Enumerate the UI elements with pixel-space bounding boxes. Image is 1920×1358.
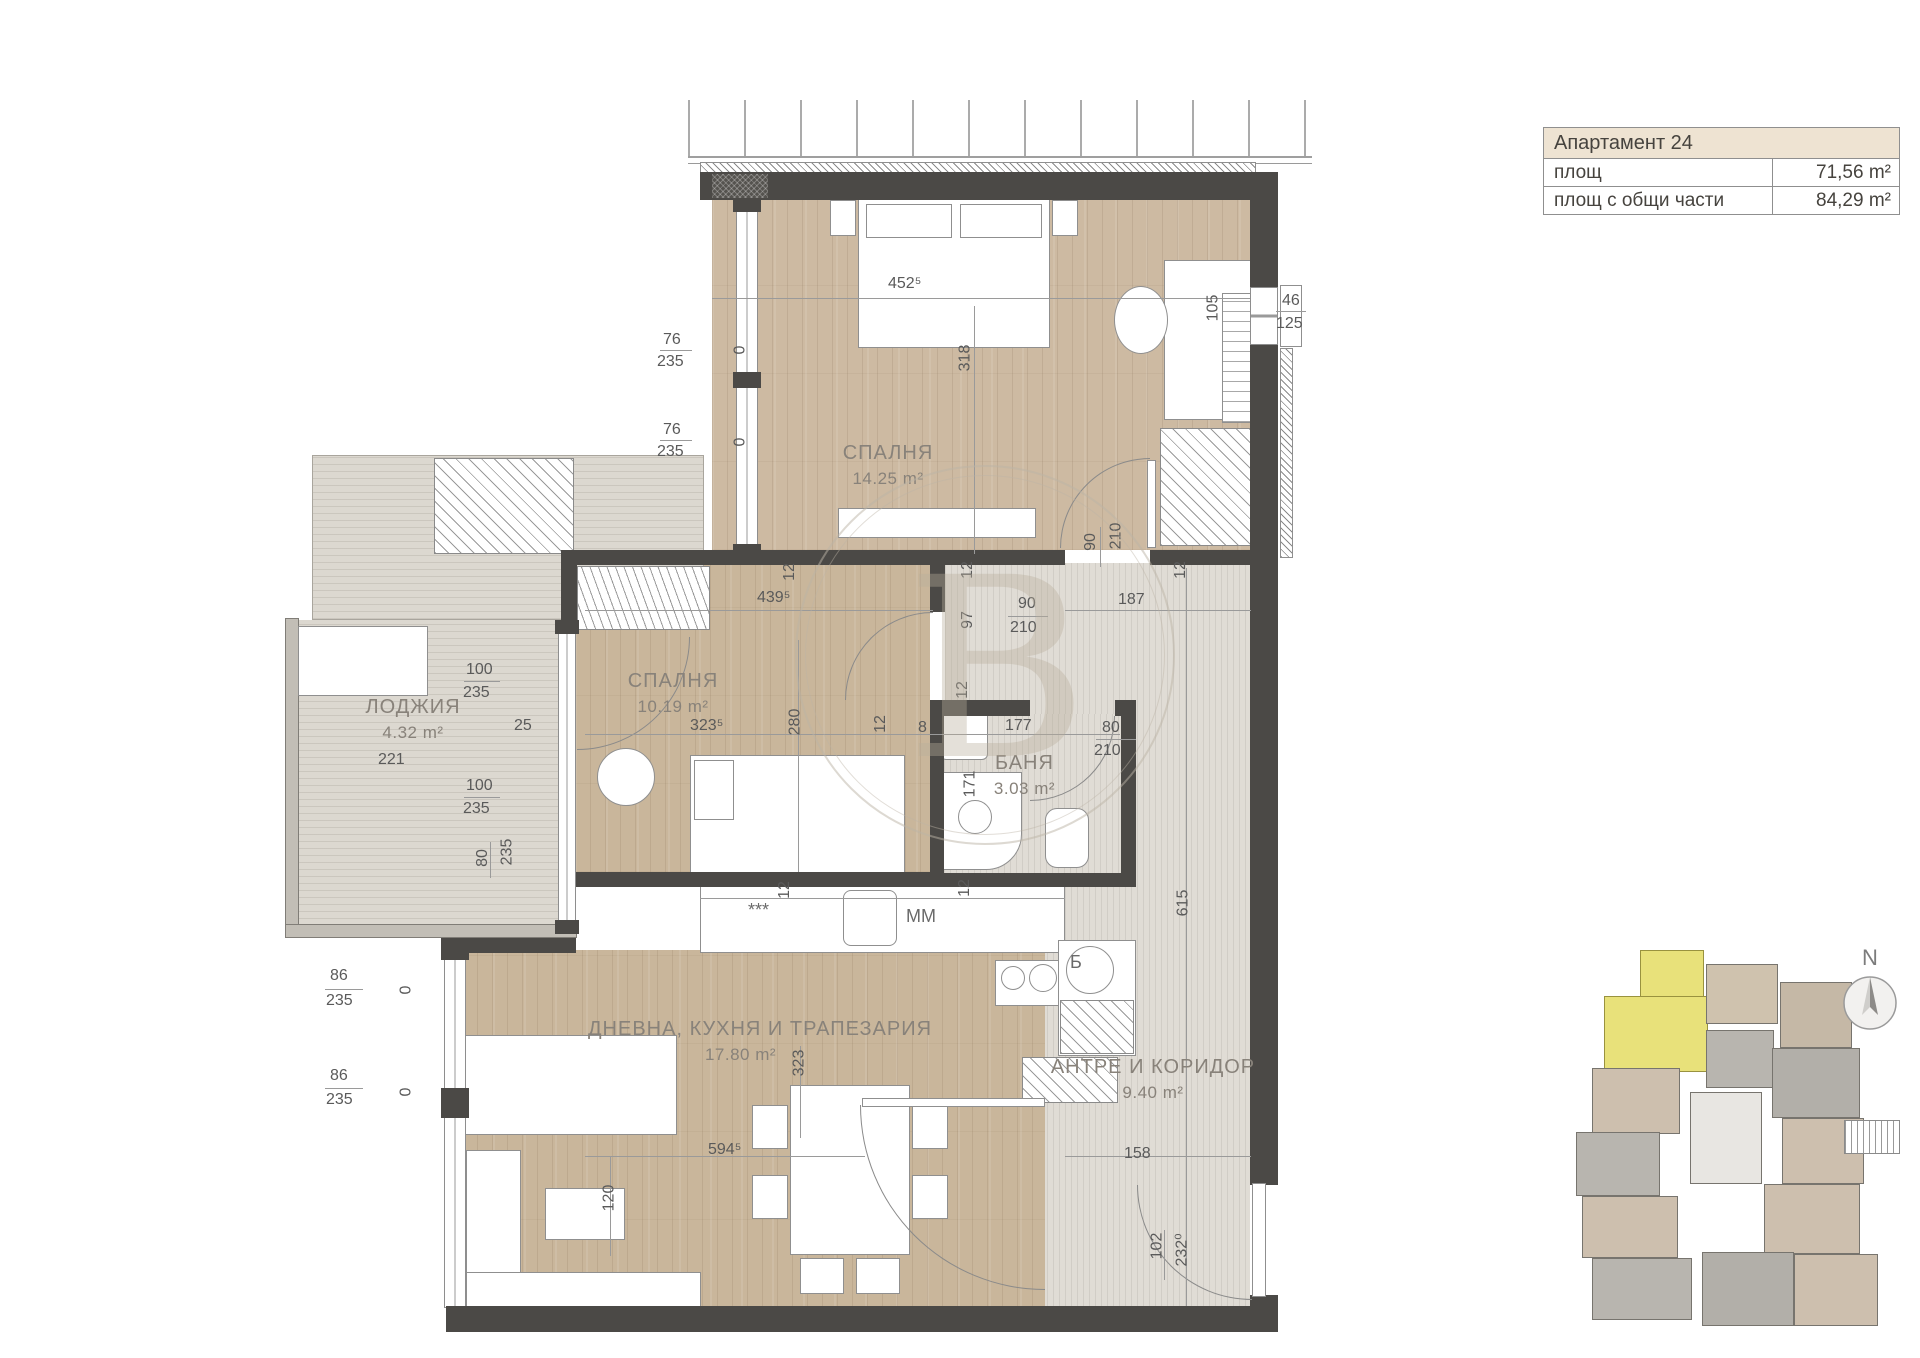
planter <box>298 626 428 696</box>
pillow <box>866 204 952 238</box>
window-living-left <box>444 958 466 1308</box>
insulation-right <box>1280 348 1293 558</box>
room-name: ДНЕВНА, КУХНЯ И ТРАПЕЗАРИЯ <box>588 1018 893 1041</box>
room-label-hall: АНТРЕ И КОРИДОР 9.40 m² <box>1048 1056 1258 1103</box>
fraction-bar <box>325 1088 363 1089</box>
compass-rose-icon <box>1838 971 1902 1035</box>
dim-bath-210: 210 <box>1094 743 1121 759</box>
cabinet <box>1060 1000 1134 1054</box>
fraction-bar <box>464 681 500 682</box>
dim-615: 615 <box>1175 890 1191 917</box>
wall-block <box>733 372 761 388</box>
minimap-unit <box>1706 964 1778 1024</box>
minimap-unit <box>1706 1030 1774 1088</box>
room-area: 10.19 m² <box>588 697 758 717</box>
wall-bath-left <box>930 700 944 887</box>
minimap-unit-highlight <box>1604 996 1708 1072</box>
dim-97: 97 <box>960 611 976 629</box>
dim-window76: 76 <box>663 422 681 438</box>
info-value: 84,29 m² <box>1773 187 1899 214</box>
dim-window-open: 0 <box>398 986 414 995</box>
toilet <box>1045 808 1089 868</box>
room-label-living: ДНЕВНА, КУХНЯ И ТРАПЕЗАРИЯ 17.80 m² <box>588 1018 893 1065</box>
wall-right <box>1250 172 1278 287</box>
info-label: площ <box>1544 159 1773 186</box>
dim-window86: 86 <box>330 1068 348 1084</box>
dishwasher-mark: *** <box>748 900 769 921</box>
room-area: 9.40 m² <box>1048 1083 1258 1103</box>
room-area: 17.80 m² <box>588 1045 893 1065</box>
dim-loggia-235: 235 <box>499 839 515 866</box>
chair <box>752 1175 788 1219</box>
dim-bath-80: 80 <box>1102 720 1120 736</box>
loggia-parapet-bottom <box>285 924 577 938</box>
dim-bedroom1-width: 452⁵ <box>888 276 921 292</box>
minimap-unit <box>1576 1132 1660 1196</box>
dim-line <box>1065 1156 1251 1157</box>
fraction-bar <box>1100 527 1101 567</box>
wardrobe-bedroom1 <box>1160 428 1252 546</box>
minimap-unit <box>1702 1252 1794 1326</box>
wall-bedroom2-right <box>930 565 945 612</box>
room-label-bedroom2: СПАЛНЯ 10.19 m² <box>588 670 758 717</box>
fraction-bar <box>1096 739 1136 740</box>
shower-drain <box>958 800 992 834</box>
dim-line <box>974 306 975 554</box>
dim-bedroom2-323: 323⁵ <box>690 718 723 734</box>
room-area: 3.03 m² <box>952 779 1097 799</box>
door-leaf-bedroom1 <box>1147 460 1156 548</box>
pillow <box>694 760 734 820</box>
dim-line <box>1186 568 1187 1306</box>
wall-bedroom1-bottom <box>1150 550 1252 565</box>
dim-window235: 235 <box>657 444 684 460</box>
dim-loggia-80: 80 <box>475 849 491 867</box>
minimap-unit <box>1764 1184 1860 1254</box>
desk-chair <box>1114 286 1168 354</box>
wall-corner-block <box>712 174 768 198</box>
window-right <box>1250 287 1278 345</box>
dim-loggia-100: 100 <box>466 778 493 794</box>
dim-window235: 235 <box>657 354 684 370</box>
dim-hall-158: 158 <box>1124 1146 1151 1162</box>
room-area: 4.32 m² <box>338 723 488 743</box>
dim-window-open: 0 <box>398 1088 414 1097</box>
dim-12: 12 <box>960 561 976 579</box>
loggia-parapet-left <box>285 618 299 938</box>
fraction-bar <box>1276 311 1306 312</box>
room-name: СПАЛНЯ <box>808 442 968 465</box>
wall-top <box>700 172 1252 200</box>
wall-block <box>441 1088 469 1118</box>
dim-12: 12 <box>1173 561 1189 579</box>
door-leaf-entrance <box>1252 1183 1266 1297</box>
washing-machine-mark: MM <box>906 906 936 927</box>
dim-line <box>1065 610 1251 611</box>
dim-bath-177: 177 <box>1005 718 1032 734</box>
dim-window-right-w: 46 <box>1282 293 1300 309</box>
dim-door-210: 210 <box>1108 523 1124 550</box>
nightstand <box>1052 200 1078 236</box>
room-area: 14.25 m² <box>808 469 968 489</box>
dim-bedroom2-width: 439⁵ <box>757 590 790 606</box>
fraction-bar <box>325 989 363 990</box>
info-row-area: площ 71,56 m² <box>1544 159 1899 187</box>
wall-block <box>733 198 761 212</box>
shelf-unit <box>1222 293 1252 423</box>
minimap-unit <box>1794 1254 1878 1326</box>
dim-desk: 105 <box>1205 295 1221 322</box>
dim-window86: 86 <box>330 968 348 984</box>
dim-12: 12 <box>955 681 971 699</box>
info-label: площ с общи части <box>1544 187 1773 214</box>
wall-block <box>555 920 579 934</box>
wall-bedroom2-bottom <box>575 872 935 887</box>
wall-bottom <box>446 1306 1278 1332</box>
burner <box>1029 964 1057 992</box>
dim-line <box>798 640 799 872</box>
wall-block <box>555 620 579 634</box>
room-name: ЛОДЖИЯ <box>338 696 488 719</box>
apartment-info-table: Апартамент 24 площ 71,56 m² площ с общи … <box>1543 127 1900 215</box>
dim-hall-102: 102 <box>1149 1233 1165 1260</box>
window-loggia <box>558 632 576 928</box>
terrace-storage <box>434 458 574 554</box>
dim-window235: 235 <box>326 1092 353 1108</box>
dim-line <box>585 610 933 611</box>
terrace-railing <box>688 100 1312 158</box>
room-label-loggia: ЛОДЖИЯ 4.32 m² <box>338 696 488 743</box>
dim-hall-232: 232⁰ <box>1175 1233 1191 1266</box>
wall-bedroom1-bottom <box>561 550 1065 565</box>
dim-living-594: 594⁵ <box>708 1142 741 1158</box>
dim-bedroom2-280: 280 <box>787 709 803 736</box>
dim-12: 12 <box>777 881 793 899</box>
dim-bedroom1-depth: 318 <box>957 345 973 372</box>
chair <box>800 1258 844 1294</box>
chair <box>752 1105 788 1149</box>
pillow <box>960 204 1042 238</box>
wardrobe-bedroom2 <box>577 566 710 630</box>
minimap-unit <box>1592 1068 1680 1134</box>
dim-door-90: 90 <box>1083 533 1099 551</box>
dim-loggia-221: 221 <box>378 752 405 768</box>
dim-line <box>700 898 1065 899</box>
armchair <box>597 748 655 806</box>
dim-187: 187 <box>1118 592 1145 608</box>
minimap-stairs <box>1844 1120 1900 1154</box>
floor-plan-canvas: B Апартамент 24 площ 71,56 m² площ с общ… <box>0 0 1920 1358</box>
wall-living-loggia <box>446 938 576 953</box>
info-row-common-area: площ с общи части 84,29 m² <box>1544 187 1899 214</box>
nightstand <box>830 200 856 236</box>
minimap-unit <box>1772 1048 1860 1118</box>
dim-door-90: 90 <box>1018 596 1036 612</box>
dim-12: 12 <box>873 715 889 733</box>
dim-window76: 76 <box>663 332 681 348</box>
room-name: БАНЯ <box>952 752 1097 775</box>
dim-12: 12 <box>957 879 973 897</box>
minimap-unit <box>1592 1258 1692 1320</box>
dim-bath-8: 8 <box>918 720 927 736</box>
apartment-title: Апартамент 24 <box>1544 128 1899 159</box>
fraction-bar <box>464 797 500 798</box>
boiler-mark: Б <box>1070 952 1082 973</box>
wall-bath-top <box>930 700 1030 716</box>
dresser <box>838 508 1036 538</box>
chair <box>856 1258 900 1294</box>
room-name: СПАЛНЯ <box>588 670 758 693</box>
fraction-bar <box>660 350 692 351</box>
dim-window-open: 0 <box>732 438 748 447</box>
info-value: 71,56 m² <box>1773 159 1899 186</box>
minimap-unit-highlight <box>1640 950 1704 1000</box>
compass-north-label: N <box>1838 945 1902 971</box>
door-leaf-living <box>862 1098 1045 1107</box>
dim-door-210: 210 <box>1010 620 1037 636</box>
dim-window235: 235 <box>326 993 353 1009</box>
dim-loggia-25: 25 <box>514 718 532 734</box>
dim-window-open: 0 <box>732 346 748 355</box>
compass: N <box>1838 945 1902 1035</box>
burner <box>1001 966 1025 990</box>
fraction-bar <box>660 440 692 441</box>
wall-bath-right <box>1121 700 1136 887</box>
dim-loggia-235: 235 <box>463 801 490 817</box>
minimap-core <box>1690 1092 1762 1184</box>
dim-line <box>712 298 1250 299</box>
dim-12: 12 <box>782 563 798 581</box>
room-name: АНТРЕ И КОРИДОР <box>1048 1056 1258 1079</box>
minimap-unit <box>1582 1196 1678 1258</box>
room-label-bath: БАНЯ 3.03 m² <box>952 752 1097 799</box>
dim-living-120: 120 <box>601 1185 617 1212</box>
dim-loggia-100: 100 <box>466 662 493 678</box>
dim-window-right-h: 125 <box>1276 316 1303 332</box>
fraction-bar <box>1008 616 1048 617</box>
room-label-bedroom1: СПАЛНЯ 14.25 m² <box>808 442 968 489</box>
dim-line <box>585 734 1120 735</box>
